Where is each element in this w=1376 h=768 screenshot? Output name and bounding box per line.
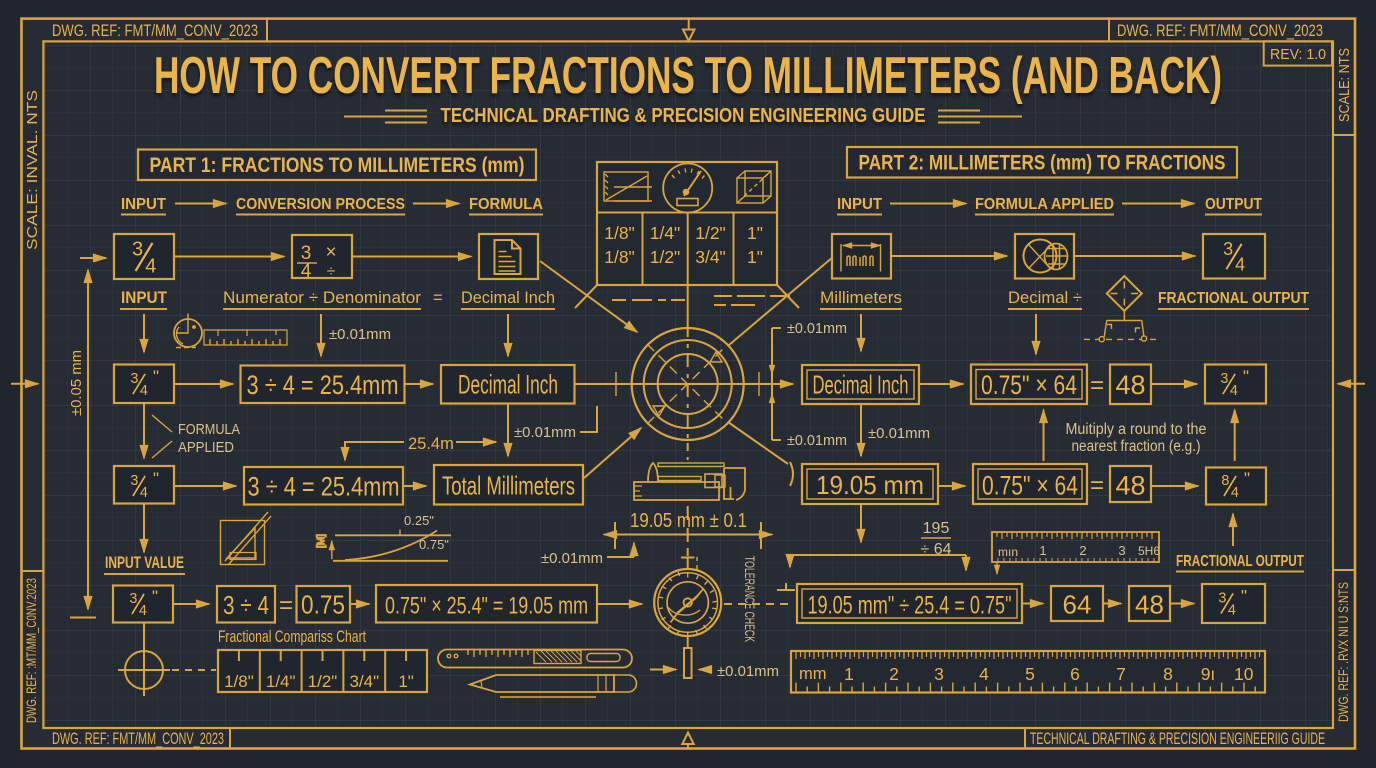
svg-text:195: 195 bbox=[923, 520, 950, 537]
svg-text:PART 1: FRACTIONS TO MILLIMETE: PART 1: FRACTIONS TO MILLIMETERS (mm) bbox=[150, 154, 525, 177]
svg-text:0.75" × 64: 0.75" × 64 bbox=[981, 370, 1077, 400]
svg-text:FORMULA: FORMULA bbox=[469, 196, 543, 213]
svg-text:INPUT: INPUT bbox=[121, 289, 167, 307]
svg-text:÷: ÷ bbox=[327, 263, 336, 280]
svg-text:4: 4 bbox=[301, 261, 312, 282]
svg-text:4: 4 bbox=[979, 664, 989, 684]
svg-text:": " bbox=[153, 367, 159, 386]
svg-text:±0.01mm: ±0.01mm bbox=[541, 550, 603, 567]
svg-text:0.75" × 64: 0.75" × 64 bbox=[982, 471, 1078, 501]
svg-text:SCALE: NTS: SCALE: NTS bbox=[1336, 48, 1353, 122]
svg-text:Decimal Inch: Decimal Inch bbox=[813, 370, 909, 400]
svg-text:Fractional Compariss Chart: Fractional Compariss Chart bbox=[218, 628, 366, 646]
svg-text:mm: mm bbox=[799, 665, 827, 683]
svg-text:DWG. REF: FMT/MM_CONV_2023: DWG. REF: FMT/MM_CONV_2023 bbox=[1117, 21, 1323, 40]
svg-text:1": 1" bbox=[747, 247, 763, 267]
svg-text:Numerator ÷ Denominator: Numerator ÷ Denominator bbox=[223, 289, 422, 307]
svg-text:5H6: 5H6 bbox=[1138, 544, 1160, 558]
svg-text:±0.01mm: ±0.01mm bbox=[717, 663, 779, 680]
svg-text:2: 2 bbox=[889, 664, 899, 684]
svg-text:1: 1 bbox=[1039, 543, 1046, 558]
svg-text:FORMULA APPLIED: FORMULA APPLIED bbox=[975, 196, 1114, 213]
svg-text:DWG. REF: .RVX NI U S:NTS: DWG. REF: .RVX NI U S:NTS bbox=[1335, 582, 1351, 722]
svg-text:=: = bbox=[279, 592, 293, 619]
svg-text:0.75": 0.75" bbox=[419, 537, 449, 552]
svg-text:6: 6 bbox=[1070, 664, 1080, 684]
svg-text:1/8": 1/8" bbox=[224, 672, 254, 691]
svg-text:HOW TO CONVERT FRACTIONS TO MI: HOW TO CONVERT FRACTIONS TO MILLIMETERS … bbox=[154, 47, 1222, 105]
svg-text:9ı: 9ı bbox=[1201, 664, 1216, 684]
svg-text:1/2": 1/2" bbox=[308, 672, 338, 691]
svg-text:INPUT: INPUT bbox=[837, 196, 883, 213]
svg-text:TECHNICAL DRAFTING & PRECISION: TECHNICAL DRAFTING & PRECISION ENGINEERI… bbox=[441, 104, 926, 127]
svg-text:±0.01mm: ±0.01mm bbox=[787, 432, 847, 449]
svg-text:±0.01mm: ±0.01mm bbox=[514, 424, 576, 441]
svg-text:TOLERANCE CHECK: TOLERANCE CHECK bbox=[742, 556, 757, 642]
svg-text:": " bbox=[1244, 469, 1250, 488]
svg-text:=: = bbox=[433, 289, 443, 307]
svg-text:19.05 mm: 19.05 mm bbox=[816, 470, 924, 500]
svg-text:±0.01mm: ±0.01mm bbox=[329, 326, 391, 343]
svg-text:1/4": 1/4" bbox=[266, 672, 296, 691]
svg-text:CONVERSION PROCESS: CONVERSION PROCESS bbox=[236, 196, 405, 213]
svg-text:64: 64 bbox=[1063, 590, 1092, 620]
svg-text:": " bbox=[1243, 367, 1249, 386]
svg-text:7: 7 bbox=[1116, 664, 1126, 684]
svg-text:2: 2 bbox=[1079, 543, 1086, 558]
svg-text:PART 2: MILLIMETERS (mm) TO FR: PART 2: MILLIMETERS (mm) TO FRACTIONS bbox=[859, 152, 1226, 175]
svg-text:Total Millimeters: Total Millimeters bbox=[442, 471, 575, 501]
svg-text:1/8": 1/8" bbox=[604, 247, 635, 267]
svg-text:TECHNICAL DRAFTING & PRECISION: TECHNICAL DRAFTING & PRECISION ENGINEERI… bbox=[1030, 730, 1325, 748]
svg-text:48: 48 bbox=[1115, 370, 1145, 400]
svg-text:=: = bbox=[1090, 372, 1104, 399]
svg-text:1": 1" bbox=[398, 672, 414, 691]
svg-text:48: 48 bbox=[1115, 471, 1145, 501]
svg-text:": " bbox=[153, 469, 159, 488]
svg-text:[M]: [M] bbox=[316, 534, 327, 548]
svg-text:1: 1 bbox=[844, 664, 854, 684]
svg-text:±0.01mm: ±0.01mm bbox=[787, 320, 847, 337]
svg-text:3: 3 bbox=[934, 664, 944, 684]
svg-text:±0.01mm: ±0.01mm bbox=[868, 425, 930, 442]
svg-text:": " bbox=[152, 587, 158, 606]
svg-text:REV: 1.0: REV: 1.0 bbox=[1270, 46, 1326, 63]
svg-text:SCALE: INVAL. NTS: SCALE: INVAL. NTS bbox=[24, 90, 41, 250]
svg-text:8: 8 bbox=[1163, 664, 1173, 684]
svg-text:FORMULA: FORMULA bbox=[178, 422, 240, 438]
svg-text:Muitiply a round to the: Muitiply a round to the bbox=[1066, 421, 1207, 438]
svg-text:5: 5 bbox=[1025, 664, 1035, 684]
svg-text:Millimeters: Millimeters bbox=[820, 289, 902, 307]
svg-text:nearest fraction (e.g.): nearest fraction (e.g.) bbox=[1072, 438, 1201, 455]
svg-text:3: 3 bbox=[1118, 543, 1125, 558]
svg-text:10: 10 bbox=[1234, 664, 1254, 684]
svg-text:INPUT VALUE: INPUT VALUE bbox=[105, 554, 184, 572]
svg-text:×: × bbox=[325, 242, 336, 263]
svg-text:1": 1" bbox=[747, 223, 763, 243]
svg-text:INPUT: INPUT bbox=[121, 196, 167, 213]
svg-text:1/8": 1/8" bbox=[604, 223, 635, 243]
svg-text:19.05 mm" ÷ 25.4 = 0.75": 19.05 mm" ÷ 25.4 = 0.75" bbox=[808, 592, 1012, 620]
svg-text:3/4": 3/4" bbox=[695, 247, 726, 267]
svg-text:": " bbox=[1241, 587, 1247, 606]
svg-text:0.75" × 25.4" = 19.05 mm: 0.75" × 25.4" = 19.05 mm bbox=[385, 593, 588, 620]
svg-text:OUTPUT: OUTPUT bbox=[1205, 196, 1262, 213]
svg-text:DWG. REF: :MT/MM_C0NV.2023: DWG. REF: :MT/MM_C0NV.2023 bbox=[23, 578, 39, 723]
svg-text:48: 48 bbox=[1135, 590, 1164, 620]
svg-text:Decimal Inch: Decimal Inch bbox=[461, 289, 555, 307]
svg-text:0.25": 0.25" bbox=[404, 513, 434, 528]
svg-text:Decimal ÷: Decimal ÷ bbox=[1008, 289, 1082, 307]
svg-text:±0.05 mm: ±0.05 mm bbox=[68, 350, 85, 416]
svg-text:DWG. REF: FMT/MM_CONV_2023: DWG. REF: FMT/MM_CONV_2023 bbox=[52, 730, 224, 748]
svg-text:3 ÷ 4 = 25.4mm: 3 ÷ 4 = 25.4mm bbox=[247, 370, 399, 400]
svg-text:0.75: 0.75 bbox=[301, 590, 345, 620]
svg-text:1/2": 1/2" bbox=[650, 247, 681, 267]
svg-text:3/4": 3/4" bbox=[349, 672, 379, 691]
svg-text:FRACTIONAL OUTPUT: FRACTIONAL OUTPUT bbox=[1176, 553, 1304, 570]
svg-text:25.4m: 25.4m bbox=[408, 435, 454, 453]
svg-text:Decimal Inch: Decimal Inch bbox=[458, 370, 558, 400]
svg-text:3 ÷ 4 = 25.4mm: 3 ÷ 4 = 25.4mm bbox=[248, 472, 400, 502]
svg-text:1/4": 1/4" bbox=[650, 223, 681, 243]
svg-text:=: = bbox=[1090, 472, 1104, 499]
svg-text:mın: mın bbox=[998, 545, 1018, 559]
svg-text:FRACTIONAL OUTPUT: FRACTIONAL OUTPUT bbox=[1158, 290, 1309, 307]
svg-text:3 ÷ 4: 3 ÷ 4 bbox=[223, 590, 269, 620]
svg-text:1/2": 1/2" bbox=[695, 223, 726, 243]
svg-text:APPLIED: APPLIED bbox=[178, 440, 234, 456]
svg-text:DWG. REF: FMT/MM_CONV_2023: DWG. REF: FMT/MM_CONV_2023 bbox=[52, 21, 258, 40]
